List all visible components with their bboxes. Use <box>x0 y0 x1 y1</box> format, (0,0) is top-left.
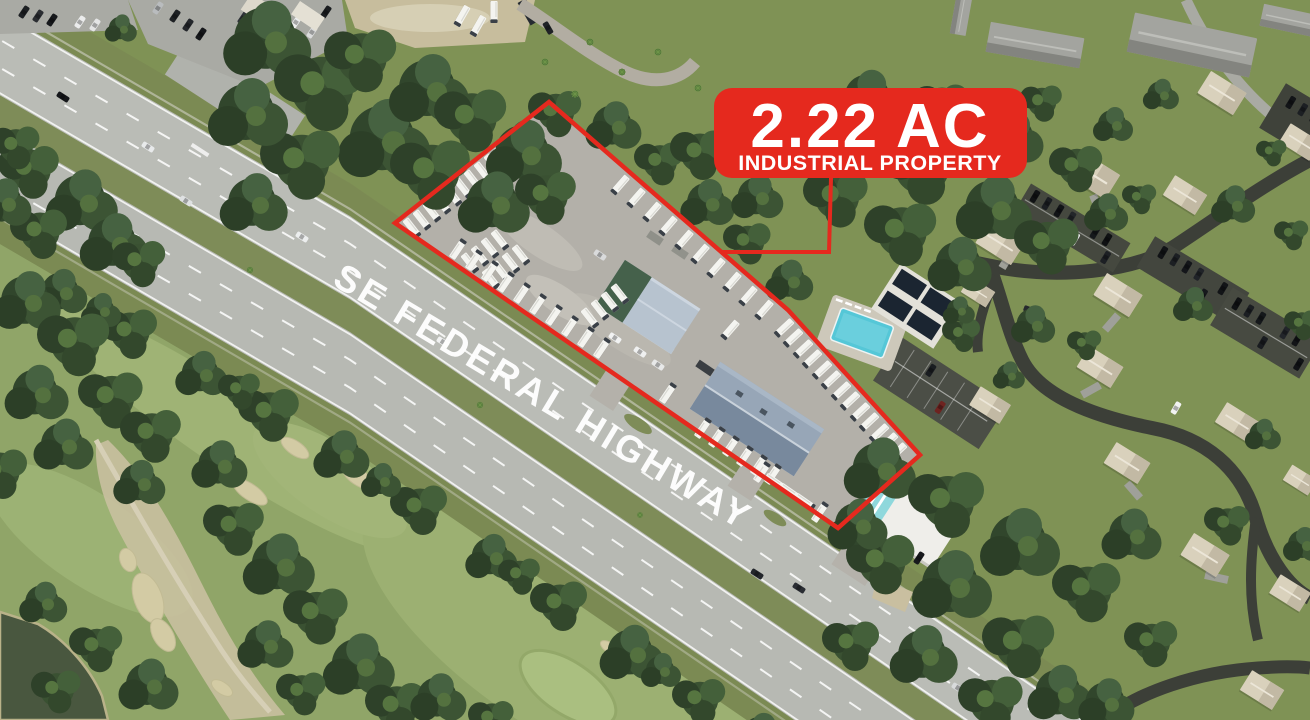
aerial-photo: 2.22 AC INDUSTRIAL PROPERTY SE FEDERAL H… <box>0 0 1310 720</box>
sand-patch <box>370 4 490 32</box>
callout-subtitle-text: INDUSTRIAL PROPERTY <box>738 151 1002 175</box>
